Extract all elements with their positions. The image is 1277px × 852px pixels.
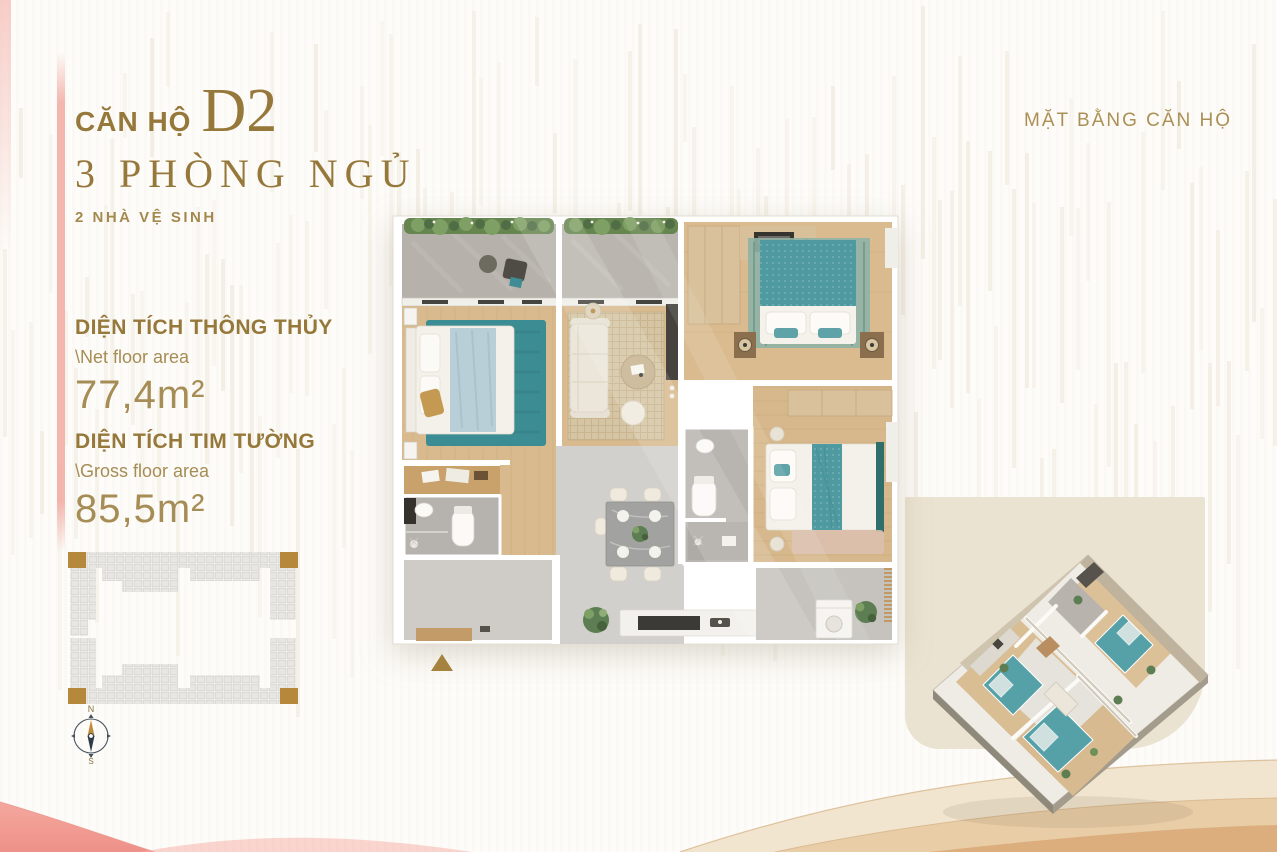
master-bedroom (402, 306, 556, 464)
toilet (452, 510, 474, 546)
bedrooms-line: 3 PHÒNG NGỦ (75, 150, 416, 197)
pink-wave (0, 780, 480, 852)
window-right-top (885, 228, 898, 268)
tv (638, 616, 700, 630)
pink-corner-wisp (0, 0, 11, 300)
unit-label: CĂN HỘ (75, 106, 191, 138)
floor-plan-2d (392, 212, 900, 648)
net-area-value: 77,4m² (75, 373, 405, 418)
compass-south-label: S (88, 757, 93, 765)
vanity-desk (404, 466, 510, 494)
window-right-mid (886, 422, 898, 482)
brochure-page: CĂN HỘ D2 3 PHÒNG NGỦ 2 NHÀ VỆ SINH MẶT … (0, 0, 1277, 852)
gross-area-title: DIỆN TÍCH TIM TƯỜNG (75, 430, 405, 454)
building-blocks (70, 552, 296, 704)
bed3-headboard (876, 442, 884, 532)
net-area-block: DIỆN TÍCH THÔNG THỦY \Net floor area 77,… (75, 316, 405, 418)
compass-north-label: N (88, 704, 95, 714)
vanity-cabinet (404, 498, 416, 524)
entry-door (416, 628, 472, 641)
entrance-arrow-icon (431, 654, 453, 671)
plan-caption: MẶT BẰNG CĂN HỘ (1024, 110, 1232, 132)
gross-area-subtitle: \Gross floor area (75, 461, 405, 482)
site-key-plan (62, 548, 306, 710)
hallway-floor (500, 464, 556, 558)
sink (415, 503, 433, 517)
cabinet-3 (788, 390, 892, 416)
unit-code: D2 (201, 84, 277, 140)
floor-plant-1 (583, 607, 609, 633)
headboard (406, 328, 416, 432)
net-area-title: DIỆN TÍCH THÔNG THỦY (75, 316, 405, 340)
entrance-area (404, 558, 556, 641)
floor-plan-3d (908, 540, 1218, 850)
compass-icon: N S (63, 703, 119, 765)
title-block: CĂN HỘ D2 3 PHÒNG NGỦ 2 NHÀ VỆ SINH (75, 84, 416, 226)
net-area-subtitle: \Net floor area (75, 347, 405, 368)
gross-area-block: DIỆN TÍCH TIM TƯỜNG \Gross floor area 85… (75, 430, 405, 532)
bathroom-1 (404, 496, 500, 556)
pink-accent-line (57, 52, 65, 552)
bathrooms-line: 2 NHÀ VỆ SINH (75, 209, 416, 226)
gross-area-value: 85,5m² (75, 487, 405, 532)
